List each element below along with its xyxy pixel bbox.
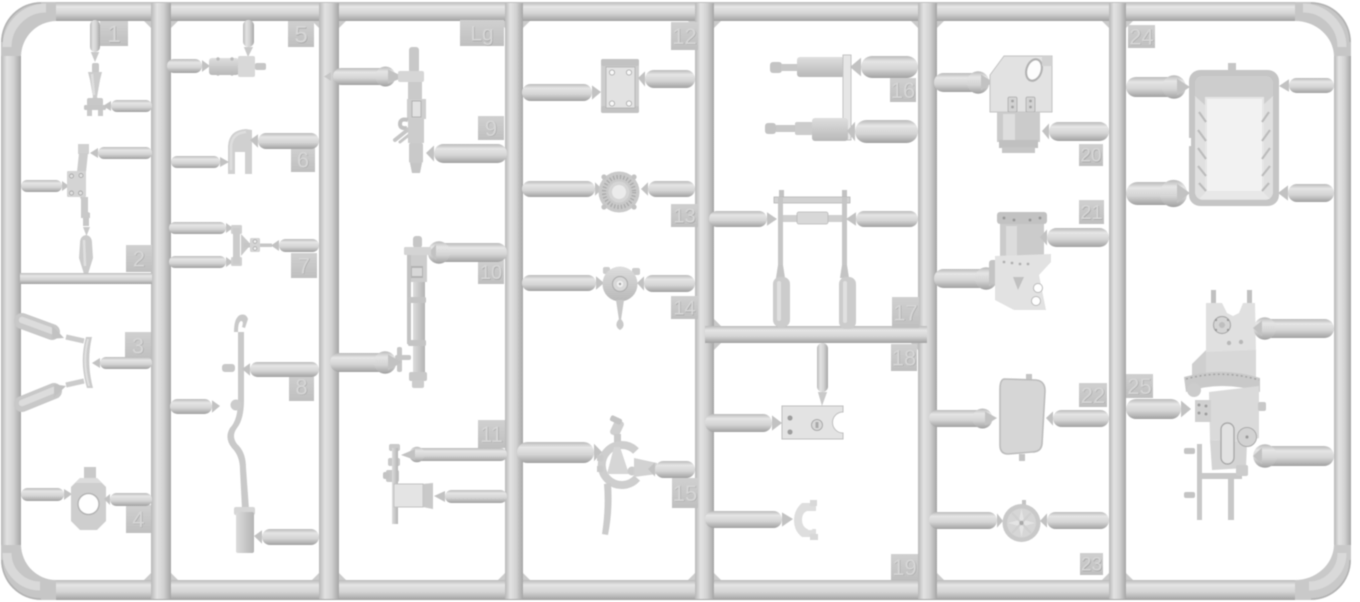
svg-text:24: 24 — [1129, 24, 1153, 49]
svg-text:4: 4 — [132, 507, 144, 532]
svg-text:5: 5 — [294, 22, 307, 49]
svg-text:7: 7 — [298, 253, 310, 278]
svg-text:21: 21 — [1080, 202, 1102, 224]
svg-text:25: 25 — [1127, 374, 1151, 399]
svg-text:14: 14 — [673, 298, 695, 320]
svg-text:1: 1 — [107, 21, 120, 48]
svg-text:11: 11 — [480, 422, 503, 447]
svg-text:10: 10 — [480, 262, 502, 284]
svg-text:23: 23 — [1081, 555, 1102, 576]
svg-text:16: 16 — [891, 78, 915, 103]
svg-text:6: 6 — [297, 147, 309, 172]
svg-text:8: 8 — [295, 374, 307, 399]
svg-text:20: 20 — [1080, 146, 1101, 167]
svg-text:18: 18 — [892, 345, 916, 370]
svg-text:12: 12 — [672, 24, 696, 49]
svg-text:19: 19 — [892, 555, 916, 580]
svg-text:Lg: Lg — [470, 23, 493, 46]
svg-text:3: 3 — [132, 333, 144, 358]
svg-text:17: 17 — [893, 300, 917, 325]
svg-text:2: 2 — [133, 246, 145, 271]
svg-text:22: 22 — [1081, 383, 1105, 408]
svg-text:15: 15 — [673, 481, 697, 506]
svg-text:13: 13 — [673, 206, 695, 228]
svg-text:9: 9 — [485, 116, 497, 141]
